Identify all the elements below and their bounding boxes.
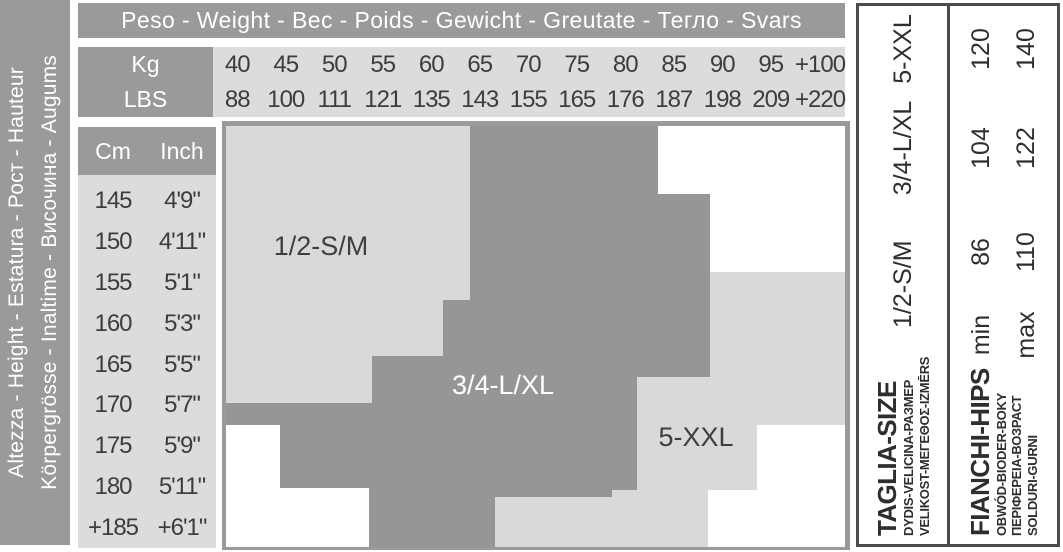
hips-max-line: max 110 <box>1012 204 1041 374</box>
hips-title-line: OBWÓD-BIODER-BOKY <box>994 374 1009 536</box>
lbs-value: 121 <box>359 82 408 117</box>
panel-size-row: TAGLIA-SIZE DYDIS-VELICINA-РАЗМЕР VELIKO… <box>859 6 950 544</box>
hips-minmax-sm: min 86 max 110 <box>950 204 1057 374</box>
inch-column-header: Inch <box>148 138 216 165</box>
size-label-sm: 1/2-S/M <box>859 204 947 374</box>
hips-minmax-xxl: 120 140 <box>950 6 1057 92</box>
height-axis-band: Altezza - Height - Estatura - Рост - Hau… <box>0 0 70 545</box>
size-title-line: DYDIS-VELICINA-РАЗМЕР <box>901 374 916 536</box>
max-label: max <box>1012 296 1041 374</box>
lbs-value: 135 <box>407 82 456 117</box>
lbs-value: 88 <box>213 82 262 117</box>
height-table-body: 1454'9"1504'11"1555'1"1605'3"1655'5"1705… <box>78 175 216 548</box>
hips-max-lxl: 122 <box>1012 92 1041 204</box>
hips-min-xxl: 120 <box>967 6 996 92</box>
zone-label: 5-XXL <box>658 422 733 452</box>
size-title-block: TAGLIA-SIZE DYDIS-VELICINA-РАЗМЕР VELIKO… <box>859 374 947 544</box>
zone-label: 1/2-S/M <box>274 231 369 261</box>
hips-title-line: ПЕРІФЕРЕІА-ВОЗРАСТ <box>1009 374 1024 536</box>
height-cm-value: 170 <box>78 391 148 419</box>
lbs-values-row: 88100111121135143155165176187198209+220 <box>213 82 845 117</box>
height-inch-value: 4'9" <box>148 187 216 215</box>
hips-title-block: FIANCHI-HIPS OBWÓD-BIODER-BOKY ПЕРІФЕРЕІ… <box>950 374 1057 544</box>
height-inch-value: 4'11" <box>148 228 216 256</box>
kg-value: 65 <box>456 47 505 82</box>
kg-unit-label: Kg <box>78 47 213 82</box>
hips-title-line: FIANCHI-HIPS <box>967 374 994 536</box>
lbs-value: 165 <box>553 82 602 117</box>
weight-unit-box: Kg LBS <box>78 47 213 117</box>
kg-value: +100 <box>795 47 845 82</box>
kg-value: 45 <box>262 47 311 82</box>
height-cm-value: 175 <box>78 432 148 460</box>
lbs-value: 176 <box>601 82 650 117</box>
hips-min-sm: 86 <box>967 208 996 296</box>
height-band-line2: Körpergrösse - Inaltime - Височина - Aug… <box>33 0 67 545</box>
height-cm-value: 160 <box>78 310 148 338</box>
hips-max-xxl: 140 <box>1012 6 1041 92</box>
height-inch-value: 5'11" <box>148 473 216 501</box>
hips-min-lxl: 104 <box>967 92 996 204</box>
height-inch-value: 5'5" <box>148 351 216 379</box>
height-cm-value: 155 <box>78 269 148 297</box>
kg-value: 95 <box>747 47 796 82</box>
height-cm-value: 150 <box>78 228 148 256</box>
lbs-unit-label: LBS <box>78 82 213 117</box>
weight-header-band: Peso - Weight - Вес - Poids - Gewicht - … <box>78 3 845 38</box>
lbs-value: 187 <box>650 82 699 117</box>
height-cm-value: 180 <box>78 473 148 501</box>
kg-value: 85 <box>650 47 699 82</box>
lbs-value: 111 <box>310 82 359 117</box>
weight-header-title: Peso - Weight - Вес - Poids - Gewicht - … <box>121 7 802 34</box>
kg-value: 80 <box>601 47 650 82</box>
height-cm-value: 145 <box>78 187 148 215</box>
lbs-value: 143 <box>456 82 505 117</box>
hips-title-line: SOLDURI-GURNI <box>1025 374 1040 536</box>
size-hips-panel: TAGLIA-SIZE DYDIS-VELICINA-РАЗМЕР VELIKO… <box>856 3 1060 547</box>
kg-value: 50 <box>310 47 359 82</box>
lbs-value: 100 <box>262 82 311 117</box>
kg-value: 40 <box>213 47 262 82</box>
kg-value: 70 <box>504 47 553 82</box>
hips-max-sm: 110 <box>1012 208 1041 296</box>
size-label-lxl: 3/4-L/XL <box>859 92 947 204</box>
lbs-value: 155 <box>504 82 553 117</box>
height-table-row: 1504'11" <box>78 222 216 263</box>
lbs-value: 198 <box>698 82 747 117</box>
size-zone-svg: 1/2-S/M3/4-L/XL5-XXL <box>222 121 850 550</box>
lbs-value: +220 <box>795 82 845 117</box>
min-label: min <box>967 296 996 374</box>
height-inch-value: 5'1" <box>148 269 216 297</box>
height-inch-value: +6'1" <box>148 514 216 542</box>
zone-label: 3/4-L/XL <box>452 370 554 400</box>
lbs-value: 209 <box>747 82 796 117</box>
height-table-header: Cm Inch <box>78 127 216 175</box>
size-title-line: VELIKOST-ΜΕΓΕΘΟΣ-IZMĒRS <box>917 374 932 536</box>
size-zone-chart: 1/2-S/M3/4-L/XL5-XXL <box>222 121 850 550</box>
panel-rotated-content: TAGLIA-SIZE DYDIS-VELICINA-РАЗМЕР VELIKO… <box>859 6 1057 544</box>
height-table-row: 1655'5" <box>78 344 216 385</box>
height-table-row: 1555'1" <box>78 263 216 304</box>
panel-hips-row: FIANCHI-HIPS OBWÓD-BIODER-BOKY ПЕРІФЕРЕІ… <box>950 6 1057 544</box>
height-table-row: +185+6'1" <box>78 507 216 548</box>
height-table: Cm Inch 1454'9"1504'11"1555'1"1605'3"165… <box>78 127 216 548</box>
size-chart-page: Altezza - Height - Estatura - Рост - Hau… <box>0 0 1063 552</box>
height-table-row: 1605'3" <box>78 303 216 344</box>
kg-value: 75 <box>553 47 602 82</box>
kg-value: 55 <box>359 47 408 82</box>
height-table-row: 1705'7" <box>78 385 216 426</box>
size-label-xxl: 5-XXL <box>859 6 947 92</box>
cm-column-header: Cm <box>78 138 148 165</box>
kg-value: 90 <box>698 47 747 82</box>
height-table-row: 1454'9" <box>78 181 216 222</box>
height-table-row: 1805'11" <box>78 466 216 507</box>
height-inch-value: 5'9" <box>148 432 216 460</box>
height-cm-value: 165 <box>78 351 148 379</box>
height-inch-value: 5'3" <box>148 310 216 338</box>
height-inch-value: 5'7" <box>148 391 216 419</box>
kg-values-row: 404550556065707580859095+100 <box>213 47 845 82</box>
kg-value: 60 <box>407 47 456 82</box>
hips-min-line: min 86 <box>967 204 996 374</box>
height-cm-value: +185 <box>78 514 148 542</box>
height-band-line1: Altezza - Height - Estatura - Рост - Hau… <box>0 0 34 545</box>
weight-values-strip: 404550556065707580859095+100 88100111121… <box>213 47 845 117</box>
hips-minmax-lxl: 104 122 <box>950 92 1057 204</box>
size-title-line: TAGLIA-SIZE <box>874 374 901 536</box>
height-table-row: 1755'9" <box>78 426 216 467</box>
